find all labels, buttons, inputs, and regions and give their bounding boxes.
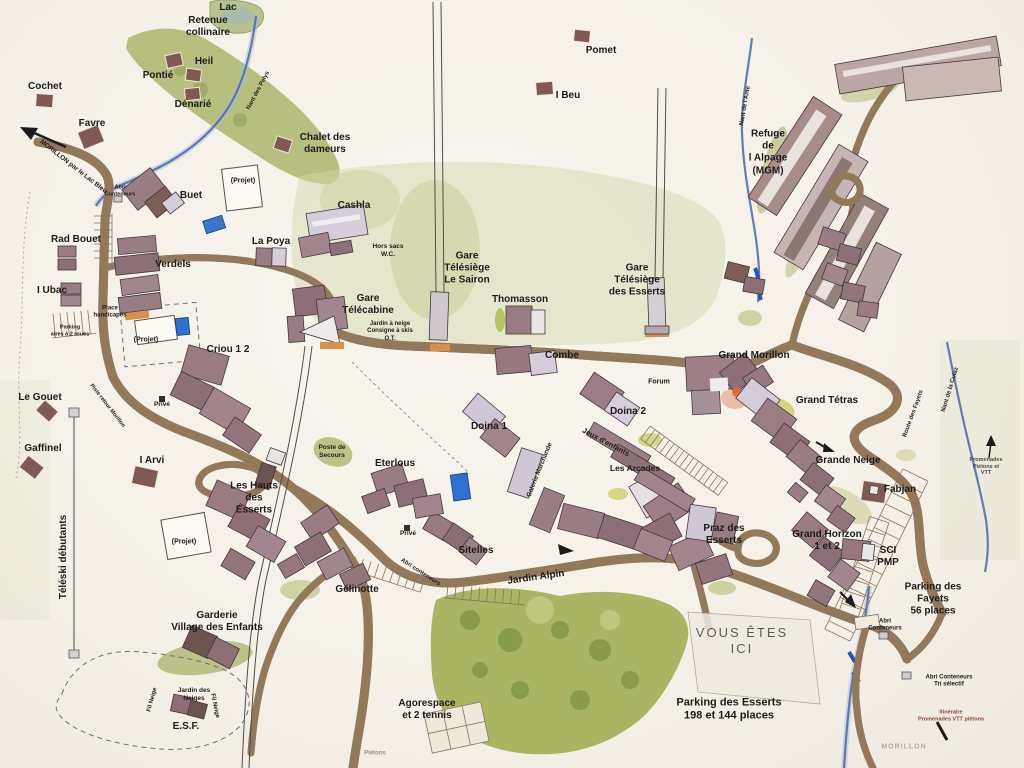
pool-criou [175, 317, 190, 335]
parking-esserts-area [688, 612, 820, 704]
prive-marker-icon [159, 396, 165, 402]
tennis-courts [424, 702, 489, 753]
pool-eterlous [450, 473, 470, 501]
container-shelter-icon [902, 672, 911, 679]
pool-buet [203, 215, 226, 234]
prive-marker-icon [404, 525, 410, 531]
container-shelter-icon [114, 196, 122, 202]
forest-areas [0, 0, 1020, 754]
direction-arrow-icon [558, 544, 574, 555]
itinerary-arrow-icon [937, 722, 947, 740]
map-artwork [0, 0, 1024, 768]
direction-arrow-icon [816, 442, 835, 452]
container-shelter-icon [879, 632, 888, 639]
resort-map: LacRetenue collinairePometHeilPontiéCoch… [0, 0, 1024, 768]
